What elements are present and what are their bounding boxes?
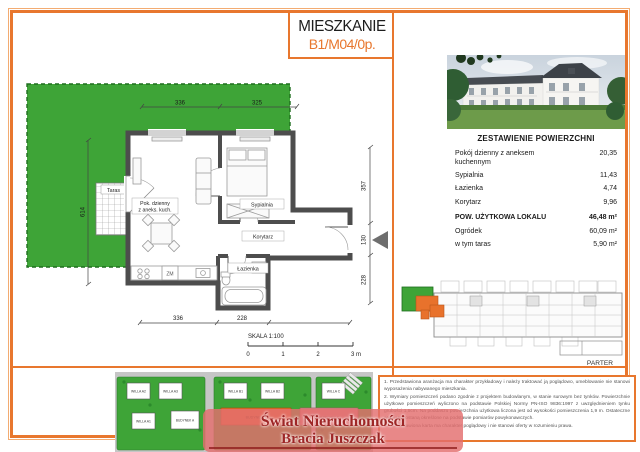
svg-text:130: 130: [362, 234, 368, 245]
svg-text:WILLA A3: WILLA A3: [163, 390, 178, 394]
scale-bar: SKALA 1:100 0 1 2 3 m: [246, 334, 361, 358]
room-label-bedroom: Sypialnia: [251, 203, 273, 209]
apartment-card-page: MIESZKANIE B1/M04/0p. Taras: [0, 0, 640, 452]
table-row: Pokój dzienny z aneksem kuchennym 20,35: [455, 150, 617, 168]
table-total-row: POW. UŻYTKOWA LOKALU 46,48 m²: [455, 214, 617, 223]
svg-text:336: 336: [175, 101, 186, 107]
room-label-bathroom: Łazienka: [237, 267, 259, 273]
scale-label: SKALA 1:100: [248, 334, 284, 340]
svg-text:WILLA A1: WILLA A1: [136, 420, 151, 424]
svg-text:336: 336: [173, 316, 184, 322]
entrance-arrow-icon: [372, 231, 388, 249]
svg-text:WILLA B2: WILLA B2: [265, 390, 280, 394]
row-label: Korytarz: [455, 199, 563, 208]
svg-text:228: 228: [237, 316, 248, 322]
vertical-divider: [392, 10, 394, 438]
row-label: w tym taras: [455, 241, 563, 250]
svg-text:WILLA C: WILLA C: [327, 390, 341, 394]
row-value: 5,90 m²: [593, 241, 617, 248]
svg-text:3 m: 3 m: [351, 352, 361, 358]
table-row: w tym taras 5,90 m²: [455, 241, 617, 250]
floorplan: Taras: [10, 10, 392, 366]
table-row: Łazienka 4,74: [455, 185, 617, 194]
agency-subname: Bracia Juszczak: [281, 431, 385, 448]
row-label: Sypialnia: [455, 172, 563, 181]
svg-text:BUDYNEK A: BUDYNEK A: [176, 419, 195, 423]
total-label: POW. UŻYTKOWA LOKALU: [455, 214, 563, 223]
svg-text:WILLA A2: WILLA A2: [131, 390, 146, 394]
svg-text:325: 325: [252, 101, 263, 107]
room-label-living-1: Pok. dzienny: [140, 201, 170, 207]
area-summary-table: ZESTAWIENIE POWIERZCHNI Pokój dzienny z …: [455, 134, 617, 254]
agency-name: Świat Nieruchomości: [261, 413, 405, 431]
room-label-corridor: Korytarz: [253, 235, 273, 241]
total-value: 46,48 m²: [589, 214, 617, 221]
washer-label: ZM: [166, 272, 173, 278]
agency-logo: Świat Nieruchomości Bracia Juszczak: [203, 409, 463, 452]
row-label: Ogródek: [455, 228, 563, 237]
svg-text:WILLA B1: WILLA B1: [228, 390, 243, 394]
table-row: Ogródek 60,09 m²: [455, 228, 617, 237]
row-value: 4,74: [603, 185, 617, 192]
terrace-label: Taras: [107, 188, 120, 194]
floor-overview-plan: PARTER: [398, 276, 628, 370]
row-value: 20,35: [599, 150, 617, 157]
row-value: 60,09 m²: [589, 228, 617, 235]
svg-text:357: 357: [362, 180, 368, 191]
svg-text:1: 1: [281, 352, 285, 358]
building-photo: [447, 55, 625, 129]
note-1: 1. Przedstawiona aranżacja ma charakter …: [384, 380, 630, 394]
row-label: Pokój dzienny z aneksem kuchennym: [455, 150, 563, 168]
svg-text:2: 2: [316, 352, 320, 358]
svg-text:0: 0: [246, 352, 250, 358]
row-value: 9,96: [603, 199, 617, 206]
svg-text:228: 228: [362, 274, 368, 285]
svg-text:614: 614: [81, 206, 87, 217]
table-row: Sypialnia 11,43: [455, 172, 617, 181]
row-label: Łazienka: [455, 185, 563, 194]
table-header: ZESTAWIENIE POWIERZCHNI: [455, 134, 617, 143]
floor-label: PARTER: [587, 360, 613, 367]
logo-rule: [209, 447, 457, 449]
room-label-living-2: z aneks. kuch.: [138, 208, 171, 214]
table-row: Korytarz 9,96: [455, 199, 617, 208]
row-value: 11,43: [600, 172, 617, 179]
